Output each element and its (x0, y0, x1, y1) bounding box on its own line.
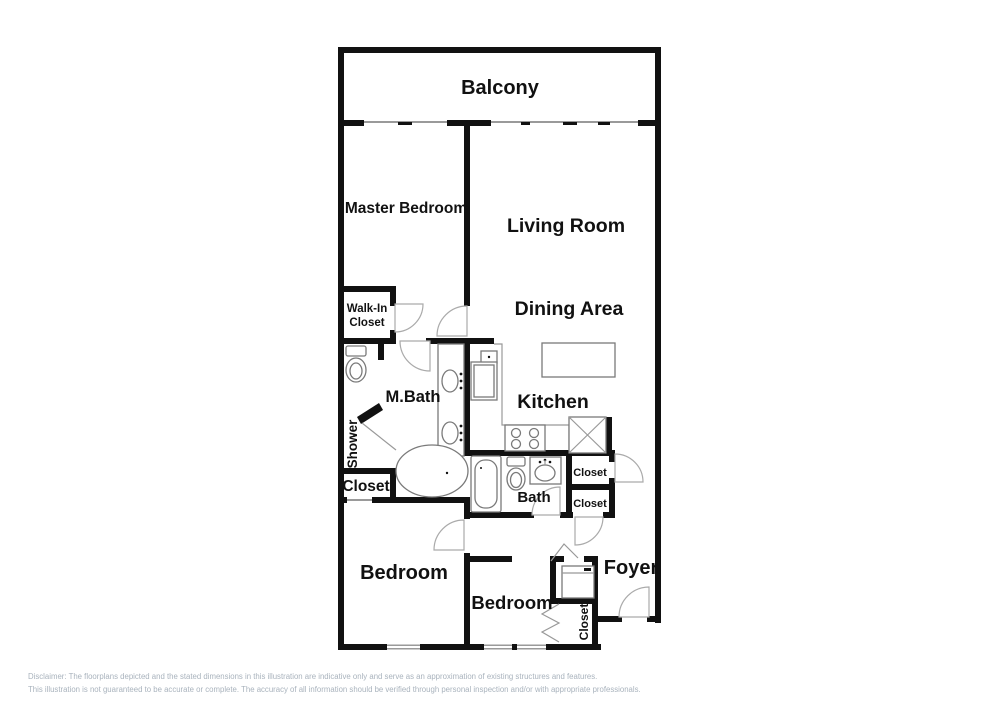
disclaimer-line-2: This illustration is not guaranteed to b… (28, 685, 641, 694)
door-arc-entry (619, 587, 649, 617)
door-arc-master-bedroom (437, 306, 467, 336)
double-vanity-icon-mbath (438, 344, 464, 456)
window-panel-tick (398, 122, 412, 125)
fridge-icon (471, 362, 497, 400)
wall-bedrooms-divider-a (464, 497, 470, 519)
wall-balcony-left (338, 120, 364, 126)
wall-mbath-kitchen (464, 338, 470, 456)
wall-bath-bottom-a (464, 512, 534, 518)
label-dining-area: Dining Area (515, 298, 624, 320)
wall-washer-bottom (550, 598, 598, 604)
label-walk-in-closet-2: Closet (349, 317, 384, 329)
wall-closets-divider (566, 484, 615, 490)
wall-bedrooms-divider-b (464, 553, 470, 650)
wall-closet1-stub-top (609, 456, 615, 462)
wall-shower-diagonal (357, 403, 383, 424)
wall-washer-top-right (584, 556, 598, 562)
label-shower: Shower (345, 419, 360, 469)
bottom-window-1b (387, 648, 420, 650)
disclaimer: Disclaimer: The floorplans depicted and … (28, 672, 641, 694)
wall-outer-top (338, 47, 661, 53)
window-panel-tick (521, 122, 530, 125)
label-living-room: Living Room (507, 215, 625, 237)
toilet-icon-mbath (346, 346, 366, 382)
toilet-icon-bath (507, 457, 525, 490)
wall-wic-right-upper (390, 286, 396, 306)
label-closet-master: Closet (342, 478, 389, 495)
wall-foyer-bottom-left (596, 616, 622, 622)
wall-closet2-right (609, 490, 615, 518)
window-panel-tick (512, 644, 517, 650)
wall-outer-left (338, 47, 344, 650)
floorplan-page: Balcony Master Bedroom Living Room Dinin… (0, 0, 1000, 707)
wall-bedroom1-top (372, 497, 466, 503)
door-arc-bedroom-left (434, 520, 464, 550)
pantry-x-icon (569, 417, 606, 453)
sink-icon-bath (530, 457, 561, 484)
label-closet-hall-lower: Closet (573, 498, 607, 510)
label-m-bath: M.Bath (386, 388, 441, 406)
label-bedroom-left: Bedroom (360, 562, 448, 584)
label-walk-in-closet-1: Walk-In (347, 303, 387, 315)
wall-master-south-b (426, 338, 494, 344)
door-arc-closet-upper (615, 454, 643, 482)
wall-outer-right (655, 47, 661, 623)
kitchen-sink-icon (481, 351, 497, 363)
wall-toilet-stub (378, 344, 384, 360)
window-panel-tick (598, 122, 610, 125)
wall-master-south-a (338, 338, 394, 344)
bedroom1-opening-line (347, 499, 372, 501)
wall-bedroom1-top-stub (338, 497, 347, 503)
label-kitchen: Kitchen (517, 391, 589, 413)
dining-table (542, 343, 615, 377)
disclaimer-line-1: Disclaimer: The floorplans depicted and … (28, 672, 597, 681)
wall-entry-closet-right (592, 598, 598, 650)
wall-wic-top (338, 286, 396, 292)
bottom-window-1a (387, 645, 420, 647)
label-bath: Bath (517, 489, 550, 506)
floorplan-drawing: Balcony Master Bedroom Living Room Dinin… (0, 0, 1000, 707)
washer-icon (562, 566, 594, 598)
label-balcony: Balcony (461, 77, 540, 99)
window-panel-tick (563, 122, 577, 125)
door-arc-closet-lower (575, 517, 603, 545)
label-closet-entry: Closet (577, 604, 591, 641)
stove-icon (505, 425, 545, 451)
label-master-bedroom: Master Bedroom (345, 200, 467, 217)
door-arc-mbath (400, 341, 430, 371)
wall-closet1-stub-bottom (609, 478, 615, 490)
label-foyer: Foyer (604, 557, 659, 579)
label-closet-hall-upper: Closet (573, 467, 607, 479)
door-arc-walk-in-closet (395, 304, 423, 332)
label-bedroom-middle: Bedroom (471, 592, 552, 613)
garden-tub-icon (396, 445, 468, 497)
wall-bedroom2-top-stub (470, 556, 512, 562)
wall-balcony-right (638, 120, 661, 126)
bathtub-icon (471, 456, 501, 512)
